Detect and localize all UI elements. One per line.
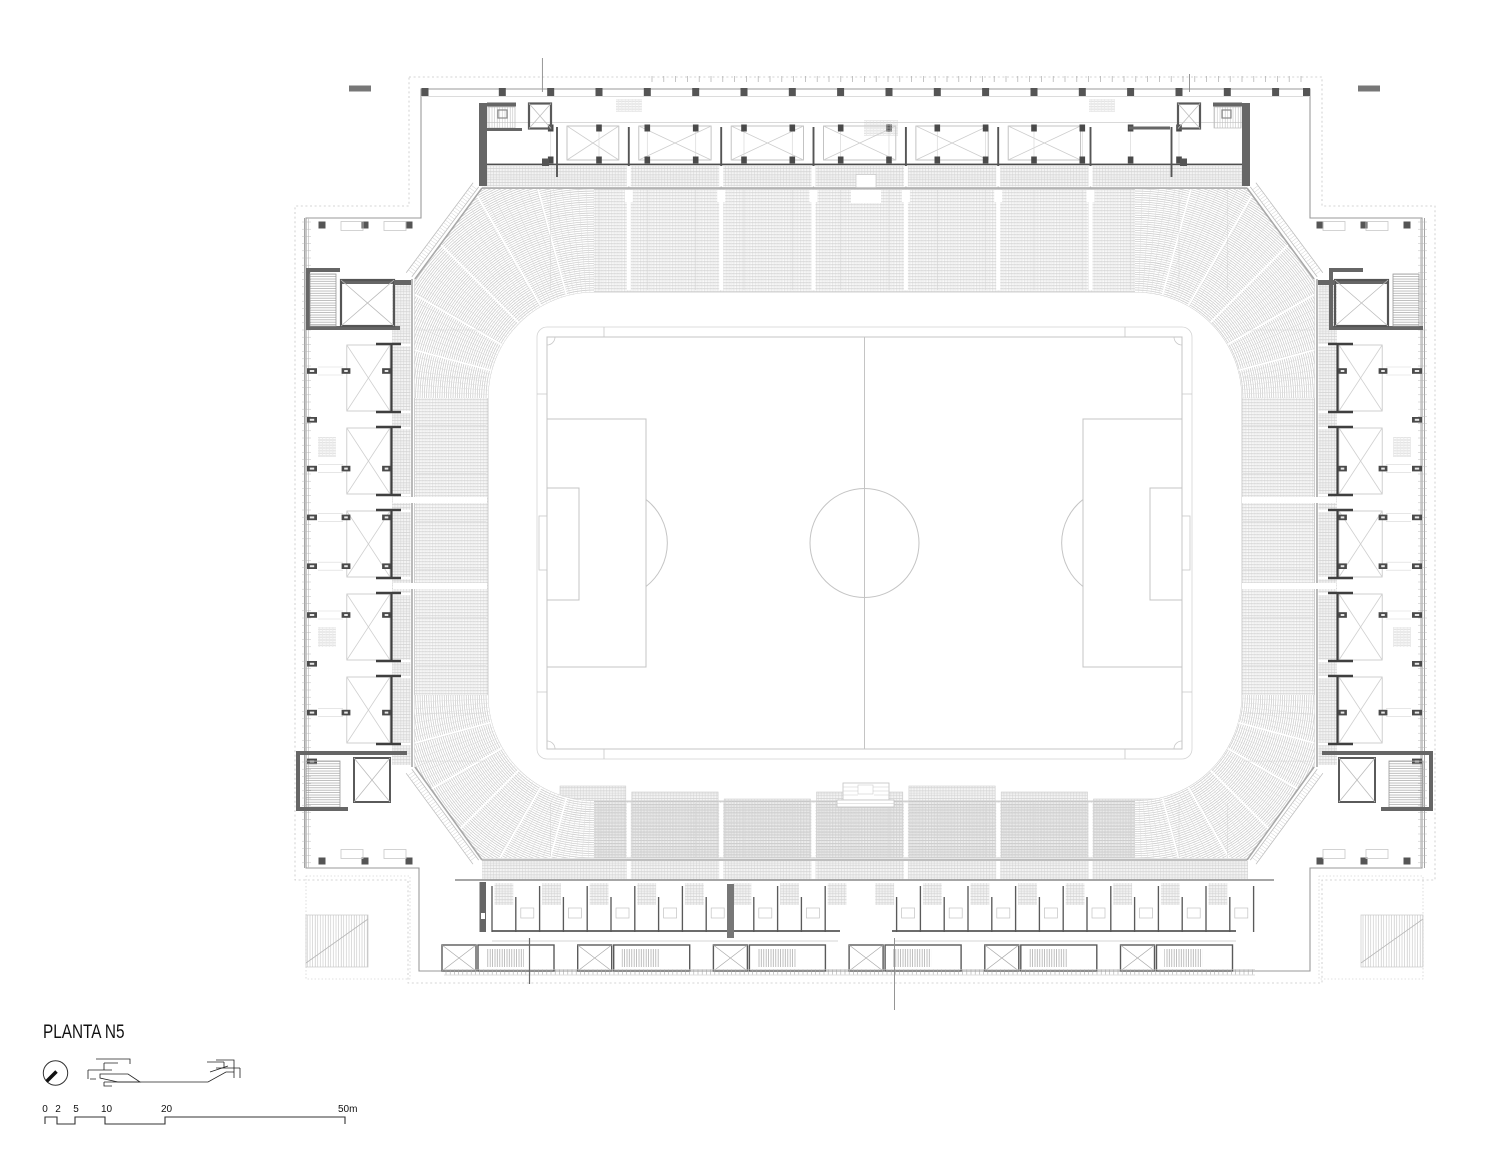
svg-text:0: 0 [42, 1104, 48, 1115]
svg-text:50m: 50m [338, 1104, 357, 1115]
svg-text:PLANTA N5: PLANTA N5 [43, 1022, 125, 1043]
svg-text:20: 20 [161, 1104, 173, 1115]
svg-text:2: 2 [55, 1104, 61, 1115]
svg-text:5: 5 [73, 1104, 79, 1115]
svg-text:10: 10 [101, 1104, 113, 1115]
